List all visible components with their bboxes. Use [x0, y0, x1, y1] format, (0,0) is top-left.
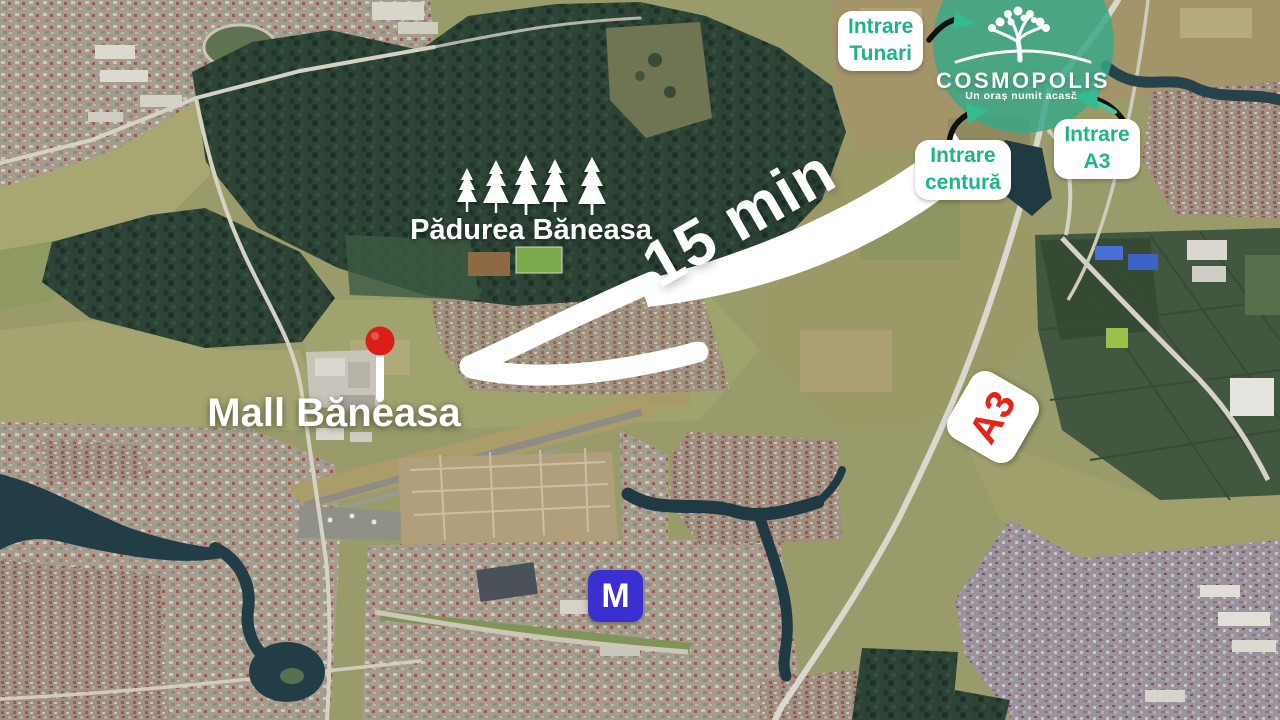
entrance-label-centura: Intrare centură	[915, 140, 1011, 200]
metro-station-icon: M	[588, 570, 643, 622]
tree-logo-icon	[948, 4, 1098, 68]
mall-label: Mall Băneasa	[178, 391, 490, 436]
logo-tagline: Un oraș numit acasă.	[928, 90, 1118, 102]
highway-a3-text: A3	[960, 383, 1026, 452]
metro-symbol: M	[601, 577, 629, 616]
entrance-label-tunari: Intrare Tunari	[838, 11, 923, 71]
map-canvas: COSMOPOLIS Un oraș numit acasă. Intrare …	[0, 0, 1280, 720]
pine-trees-icon	[452, 150, 618, 216]
forest-label: Pădurea Băneasa	[400, 214, 662, 247]
entrance-label-a3: Intrare A3	[1054, 119, 1140, 179]
